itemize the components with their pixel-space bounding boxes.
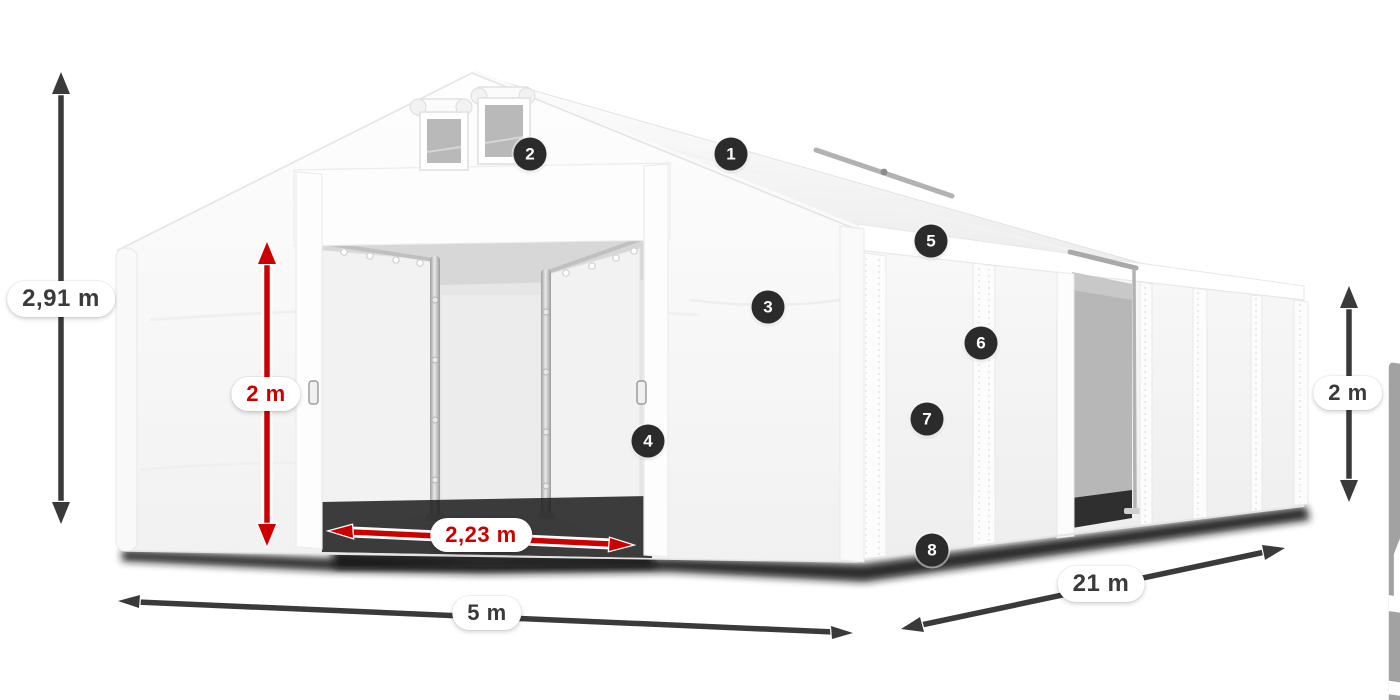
dimension-label-length: 21 m: [1058, 566, 1145, 602]
dimension-label-entrance-width: 2,23 m: [430, 518, 532, 552]
corner-post-left: [116, 248, 137, 551]
upright-pole: [1134, 268, 1135, 510]
door-handle-left: [309, 381, 318, 404]
callout-1-roof[interactable]: 1: [715, 138, 748, 171]
dimension-label-width: 5 m: [452, 596, 521, 630]
dimension-label-total-height: 2,91 m: [7, 281, 115, 317]
callout-8-ground-bar[interactable]: 8: [916, 534, 949, 567]
roof-vent-left: [410, 99, 472, 170]
door-handle-right: [637, 381, 646, 404]
corner-post-right: [840, 226, 864, 562]
callout-2-roof-vent[interactable]: 2: [514, 138, 547, 171]
callout-5-eave[interactable]: 5: [915, 225, 948, 258]
open-side-bay: [1070, 252, 1142, 528]
dimension-label-side-height: 2 m: [1313, 376, 1382, 410]
callout-7-side-window[interactable]: 7: [911, 403, 944, 436]
tent-illustration: [0, 0, 1400, 700]
callout-3-front-wall[interactable]: 3: [752, 291, 785, 324]
tent-dimension-diagram: 2,91 m 2 m 2,23 m 5 m 21 m 2 m 1 2 3 4 5…: [0, 0, 1400, 700]
side-wall: [858, 250, 1400, 700]
dimension-label-entrance-height: 2 m: [231, 377, 300, 411]
callout-4-entrance[interactable]: 4: [632, 425, 665, 458]
callout-6-side-panel[interactable]: 6: [965, 327, 998, 360]
